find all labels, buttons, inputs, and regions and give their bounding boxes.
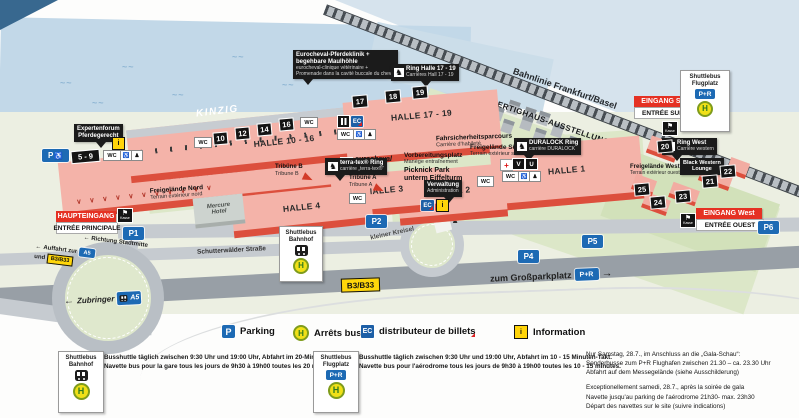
stand-number-10: 10 <box>214 132 228 144</box>
horse-icon: ♞ <box>328 162 338 171</box>
parking-badge-p1: P1 <box>123 227 144 240</box>
bus-stop-icon: H <box>293 325 309 341</box>
disabled-parking-badge: P♿ <box>42 149 69 162</box>
wc-badge: WC <box>103 150 121 161</box>
gala-info-fr: Départ des navettes sur le site (suivre … <box>586 402 771 411</box>
parking-badge-p2: P2 <box>366 215 387 228</box>
legend-label: Parking <box>240 326 275 337</box>
callout-title: Lounge <box>683 166 721 172</box>
shuttle-info-fr: Navette bus pour la gare tous les jours … <box>104 362 345 371</box>
hall-label: HALLE 17 - 19 <box>391 107 453 122</box>
wheelchair-icon: ♿ <box>54 152 63 160</box>
area-label-fr: Manège entraînement <box>404 159 462 165</box>
ec-cash-icon: EC <box>421 200 434 211</box>
bus-stop-icon: H <box>697 101 713 117</box>
shuttlebus-flugplatz-box-footer: Shuttlebus Flugplatz P+R H <box>313 351 359 413</box>
gala-info-de: Abfahrt auf dem Messegelände (siehe Auss… <box>586 368 771 377</box>
wave-mark: ~~ <box>60 78 73 88</box>
area-label-de: Tribüne B <box>275 164 303 171</box>
gala-info-de: Nur Samstag, 28.7., im Anschluss an die … <box>586 350 771 359</box>
freigelaende-west-label: Freigelände West Terrain extérieur ouest <box>630 164 680 177</box>
stand-number-18: 18 <box>386 90 401 102</box>
legend-label: distributeur de billets <box>379 326 476 337</box>
legend-bus-stop: H Arrêts bus <box>293 325 362 341</box>
arrow-left-icon: ← <box>83 235 90 242</box>
parking-badge-p5: P5 <box>582 235 603 248</box>
arrow-left-icon: ← <box>64 296 75 308</box>
ec-cash-icon: EC <box>351 116 363 127</box>
bus-stop-icon: H <box>328 382 345 399</box>
mercure-label: Hotel <box>211 208 227 216</box>
shuttle-label: Flugplatz <box>323 362 349 369</box>
wave-mark: ~~ <box>172 90 185 100</box>
kasse-label: Kasse <box>120 217 130 221</box>
shuttle-label: Shuttlebus <box>321 355 352 362</box>
gala-info-de: Sonderbusse zum P+R Flughafen zwischen 2… <box>586 359 771 368</box>
kasse-icon: ⚑Kasse <box>663 122 677 135</box>
entree-ouest-sign: ENTRÉE OUEST <box>696 219 764 231</box>
shuttle-label: Shuttlebus <box>286 230 317 237</box>
farrier-horseshoe-icon: ∪ <box>526 159 537 169</box>
kasse-icon: ⚑Kasse <box>681 214 695 227</box>
stand-number-5-9: 5 - 9 <box>72 150 100 163</box>
stand-number-25: 25 <box>635 183 650 195</box>
arrow-right-icon: → <box>601 267 613 279</box>
legend-ticket-machine: EC distributeur de billets <box>361 325 476 338</box>
kasse-label: Kasse <box>665 130 675 134</box>
shuttle-label: Shuttlebus <box>66 355 97 362</box>
road-label: zum Großparkplatz <box>490 270 572 284</box>
family-icon: ♟ <box>131 150 143 161</box>
wc-badge: WC <box>477 176 494 187</box>
hall-label: HALLE 4 <box>282 200 320 214</box>
wave-mark: ~~ <box>92 98 105 108</box>
callout-title: Eurocheval-Pferdeklinik + <box>296 52 395 59</box>
hall-label: HALLE 1 <box>548 163 586 176</box>
shuttle-label: Bahnhof <box>289 237 313 244</box>
parking-badge-p6: P6 <box>758 221 779 234</box>
entree-principale-sign: ENTRÉE PRINCIPALE <box>56 222 118 234</box>
haupteingang-sign: HAUPTEINGANG <box>56 211 116 222</box>
legend-information: i Information <box>514 325 585 339</box>
wc-badge: WC <box>349 193 366 204</box>
area-label-de: Freigelände Süd <box>470 144 521 151</box>
stand-number-14: 14 <box>258 123 272 135</box>
stand-number-23: 23 <box>676 190 691 202</box>
ring-halle-callout: ♞ Ring Halle 17 - 19 Carrières Hall 17 -… <box>391 64 459 81</box>
shuttlebus-bahnhof-box-map: Shuttlebus Bahnhof H <box>279 226 323 282</box>
stand-number-19: 19 <box>413 86 428 98</box>
legend-label: Information <box>533 327 585 338</box>
kasse-label: Kasse <box>683 222 693 226</box>
bahnhof-shuttle-info: Busshuttle täglich zwischen 9:30 Uhr und… <box>104 353 345 372</box>
wave-mark: ~~ <box>122 62 135 72</box>
flugplatz-shuttle-info: Busshuttle täglich zwischen 9:30 Uhr und… <box>359 353 621 372</box>
stand-number-17: 17 <box>353 95 368 107</box>
callout-subtitle: Promenade dans la cavité buccale du chev… <box>296 72 395 78</box>
parking-badge-p4: P4 <box>518 250 539 263</box>
callout-subtitle: Carrières Hall 17 - 19 <box>406 73 456 79</box>
stand-number-21: 21 <box>703 175 718 187</box>
shuttlebus-flugplatz-box-map: Shuttlebus Flugplatz P+R H <box>680 70 730 132</box>
stand-number-12: 12 <box>236 127 250 139</box>
autobahn-a5-badge: A5 <box>79 247 96 258</box>
callout-subtitle: carrière DURALOCK <box>529 147 578 153</box>
horse-icon: ♞ <box>517 142 527 151</box>
family-icon: ♟ <box>364 129 376 140</box>
gala-shuttle-info: Nur Samstag, 28.7., im Anschluss an die … <box>586 350 771 411</box>
callout-title: Expertenforum <box>77 126 120 133</box>
area-label-fr: Tribune B <box>275 171 303 177</box>
duralock-callout: ♞ DURALOCK Ring carrière DURALOCK <box>514 138 581 155</box>
shuttle-label: Flugplatz <box>692 81 718 88</box>
family-icon: ♟ <box>529 171 541 182</box>
info-icon: i <box>112 137 125 150</box>
park-and-ride-badge: P+R <box>574 268 599 281</box>
shuttle-info-fr: Navette bus pour l'aérodrome tous les jo… <box>359 362 621 371</box>
train-icon <box>295 245 308 256</box>
road-label: und <box>34 254 46 261</box>
mercure-hotel: Mercure Hotel <box>193 193 246 228</box>
stand-number-16: 16 <box>280 118 294 130</box>
road-label: A5 <box>130 294 139 301</box>
gala-info-fr: Exceptionellement samedi, 28.7., après l… <box>586 383 771 392</box>
verwaltung-callout: Verwaltung Administration <box>424 180 462 197</box>
black-western-lounge-callout: Black Western Lounge <box>680 158 724 175</box>
picknick-park-label: Picknick Park <box>404 167 462 175</box>
terratex-callout: ♞ terra-tex® Ring carrière „terra-tex®“ <box>325 158 387 175</box>
wave-mark: ~~ <box>282 80 295 90</box>
legend-parking: P Parking <box>222 325 275 338</box>
park-and-ride-badge: P+R <box>695 89 715 99</box>
stand-number-24: 24 <box>651 196 666 208</box>
area-label-fr: Terrain extérieur ouest <box>630 171 680 177</box>
callout-subtitle: carrière „terra-tex®“ <box>340 167 384 173</box>
info-icon: i <box>514 325 528 339</box>
shuttle-label: Shuttlebus <box>690 74 721 81</box>
bus-stop-icon: H <box>73 383 90 400</box>
autobahn-a5-badge: A5 <box>117 291 142 305</box>
legend-label: Arrêts bus <box>314 328 362 339</box>
kasse-icon: ⚑Kasse <box>118 209 132 222</box>
first-aid-icon: + <box>500 159 513 171</box>
fairground-map: ~~ ~~ ~~ ~~ ~~ ~~ ♟ ♟ Bahnlinie Frankfur… <box>0 0 799 418</box>
wc-badge: WC <box>194 137 212 148</box>
shuttle-label: Bahnhof <box>69 362 93 369</box>
train-icon <box>75 370 88 381</box>
info-icon: i <box>436 199 449 212</box>
bus-stop-icon: H <box>293 258 309 274</box>
area-label-de: Tribüne A <box>349 175 376 182</box>
area-label-fr: Tribune A <box>349 182 376 188</box>
parking-icon: P <box>222 325 235 338</box>
parking-letter: P <box>48 151 53 160</box>
eingang-west-sign: EINGANG West <box>696 208 762 219</box>
callout-subtitle: Carrière western <box>677 147 714 153</box>
tribuene-a-label: Tribüne A Tribune A <box>349 175 376 188</box>
restaurant-icon <box>338 116 349 127</box>
callout-subtitle: Administration <box>427 189 459 195</box>
ec-cash-icon: EC <box>361 325 374 338</box>
shuttle-train-icon <box>120 295 128 302</box>
tribuene-b-label: Tribüne B Tribune B <box>275 164 303 177</box>
wave-mark: ~~ <box>232 52 245 62</box>
park-and-ride-badge: P+R <box>326 370 346 380</box>
shuttlebus-bahnhof-box-footer: Shuttlebus Bahnhof H <box>58 351 104 413</box>
area-label-de: Vorbereitungsplatz <box>404 152 462 159</box>
stand-number-22: 22 <box>721 165 736 177</box>
b3-b33-road-badge: B3/B33 <box>341 277 380 292</box>
freigelaende-sued-label: Freigelände Süd Terrain extérieur sud <box>470 144 521 158</box>
horse-icon: ♞ <box>394 68 404 77</box>
wc-badge: WC <box>502 171 519 182</box>
vorbereitungsplatz-label: Vorbereitungsplatz Manège entraînement P… <box>404 152 462 183</box>
wc-badge: WC <box>337 129 354 140</box>
arrow-left-icon: ← <box>35 243 42 250</box>
road-label: Zubringer <box>77 294 115 305</box>
stand-number-20: 20 <box>658 140 673 152</box>
wc-badge: WC <box>300 117 318 128</box>
shuttle-info-de: Busshuttle täglich zwischen 9:30 Uhr und… <box>359 354 612 361</box>
area-label-fr: Terrain extérieur sud <box>470 151 521 157</box>
gala-info-fr: Navette jusqu'au parking de l'aérodrome … <box>586 393 771 402</box>
shuttle-info-de: Busshuttle täglich zwischen 9:30 Uhr und… <box>104 354 345 361</box>
pferdeklinik-callout: Eurocheval-Pferdeklinik + begehbare Maul… <box>293 50 398 79</box>
veterinary-icon: V <box>513 159 524 169</box>
